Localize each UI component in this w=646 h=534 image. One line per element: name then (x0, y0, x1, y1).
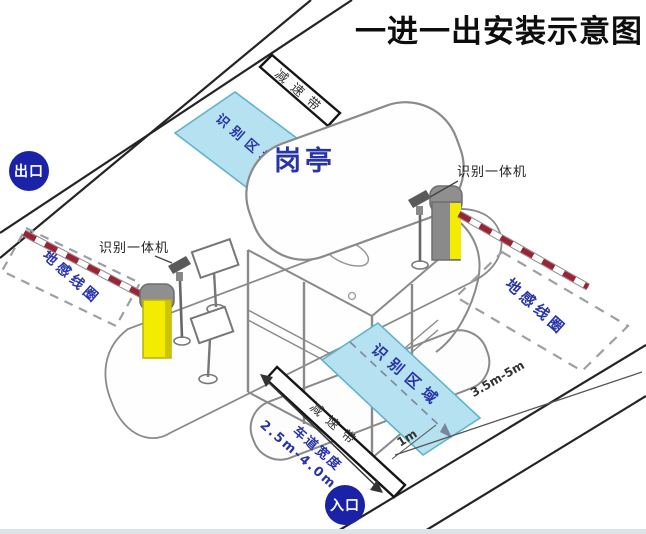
diagram-canvas: 减速带 识别区域 地感线圈 岗亭 (0, 0, 646, 534)
booth-knob (349, 293, 356, 300)
camera-mount (176, 272, 183, 281)
speed-bump-top-label: 减速带 (271, 67, 328, 120)
barrier-cabinet-shade (165, 301, 171, 357)
machine-label-left-text: 识别一体机 (99, 241, 169, 256)
exit-badge-text: 出口 (14, 163, 44, 180)
page-title: 一进一出安装示意图 (355, 14, 643, 50)
entrance-badge-text: 入口 (330, 498, 360, 514)
installation-diagram: 减速带 识别区域 地感线圈 岗亭 (0, 0, 646, 534)
machine-label-left: 识别一体机 (99, 241, 172, 263)
barrier-cabinet-shade (450, 203, 461, 259)
sign-board (192, 239, 239, 278)
image-bottom-strip (0, 529, 646, 534)
machine-label-right-text: 识别一体机 (457, 165, 527, 180)
camera-mount (416, 206, 423, 215)
entrance-badge: 入口 (325, 485, 365, 525)
speed-bump-top: 减速带 (260, 55, 340, 126)
booth-label: 岗亭 (274, 145, 336, 177)
exit-badge: 出口 (9, 151, 49, 191)
camera-head-icon (168, 256, 191, 274)
